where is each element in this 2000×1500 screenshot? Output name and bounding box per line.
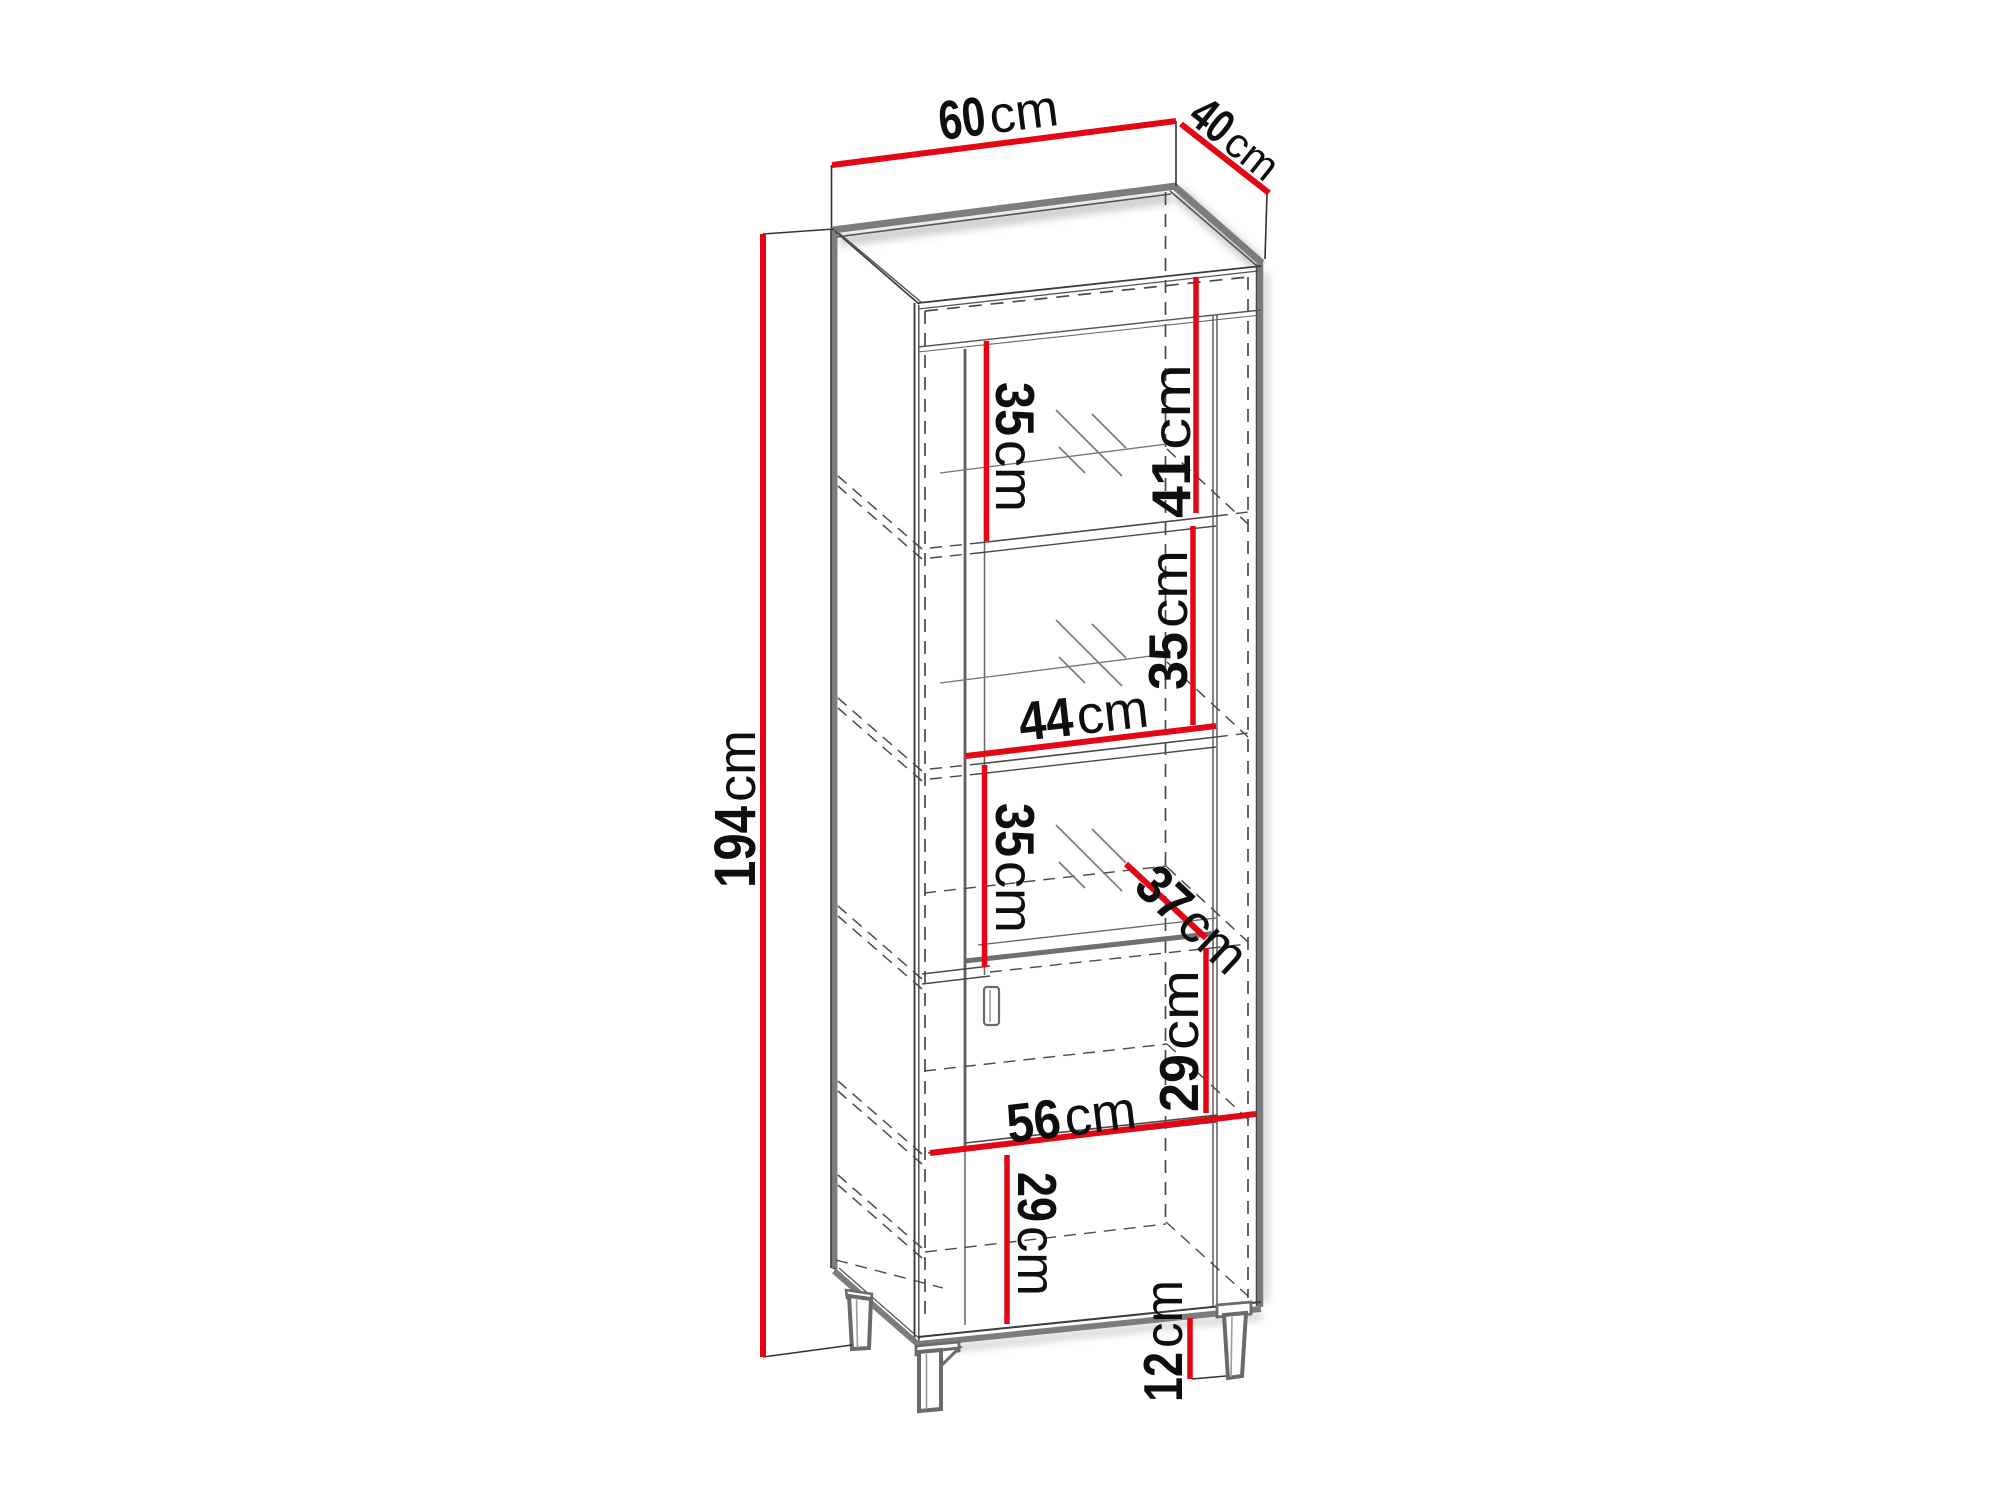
svg-text:35: 35 [1137, 632, 1199, 690]
svg-text:29: 29 [1148, 1054, 1210, 1112]
svg-text:cm: cm [1073, 679, 1151, 747]
svg-text:194: 194 [703, 806, 768, 888]
svg-text:60: 60 [935, 84, 989, 151]
svg-text:cm: cm [1061, 1080, 1140, 1148]
svg-text:cm: cm [1006, 1226, 1066, 1296]
svg-text:cm: cm [1134, 1280, 1194, 1348]
svg-text:35: 35 [984, 803, 1046, 857]
svg-text:cm: cm [1150, 970, 1210, 1050]
svg-text:cm: cm [1142, 364, 1202, 450]
svg-text:cm: cm [984, 861, 1044, 933]
svg-text:44: 44 [1015, 685, 1076, 753]
svg-text:cm: cm [1139, 550, 1199, 628]
svg-text:56: 56 [1003, 1087, 1064, 1155]
svg-text:cm: cm [984, 440, 1044, 512]
svg-text:35: 35 [984, 382, 1046, 436]
svg-text:cm: cm [707, 730, 767, 802]
svg-text:12: 12 [1132, 1352, 1194, 1402]
svg-text:41: 41 [1140, 454, 1202, 518]
svg-text:cm: cm [986, 79, 1062, 145]
svg-text:29: 29 [1006, 1172, 1068, 1222]
